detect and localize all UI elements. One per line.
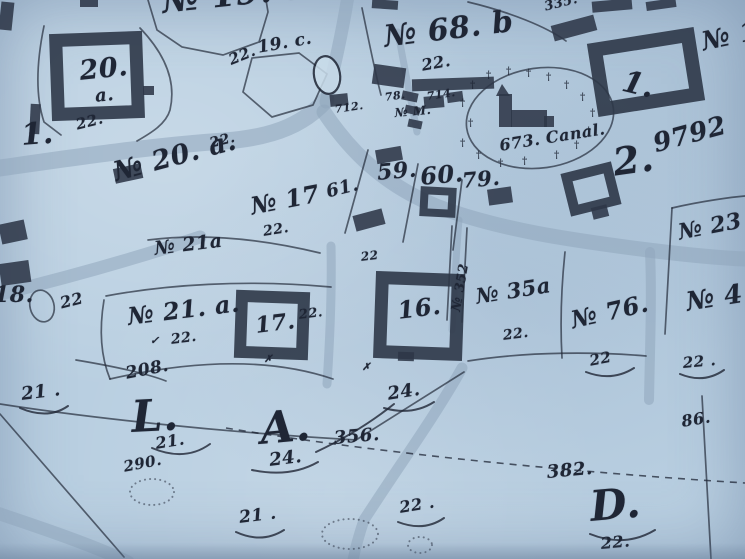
label-layer: № 19. a.22.19. c.20.a.22.1.№ 68. b22.335… bbox=[0, 0, 745, 559]
map-label: № 17 bbox=[248, 179, 322, 221]
grave-cross-icon: † bbox=[590, 108, 595, 119]
map-label: 22. bbox=[74, 109, 105, 133]
map-label: 22 bbox=[58, 288, 85, 312]
map-label: 61. bbox=[324, 174, 361, 202]
map-label: 17. bbox=[254, 308, 297, 339]
map-label: 335. bbox=[543, 0, 579, 15]
map-label: 22. bbox=[226, 42, 258, 69]
map-label: ✓ bbox=[150, 334, 160, 347]
map-label: 22. bbox=[502, 325, 530, 344]
grave-cross-icon: † bbox=[460, 98, 465, 109]
grave-cross-icon: † bbox=[564, 80, 569, 91]
map-label: 382. bbox=[546, 458, 593, 483]
map-label: ✗ bbox=[264, 354, 273, 365]
map-label: 22 . bbox=[398, 492, 436, 516]
map-label: 22. bbox=[420, 51, 452, 75]
map-label: 9792 bbox=[650, 111, 730, 159]
map-label: 20. bbox=[78, 51, 129, 87]
map-label: № 68. b bbox=[382, 4, 515, 55]
grave-cross-icon: † bbox=[526, 68, 531, 79]
grave-cross-icon: † bbox=[476, 150, 481, 161]
map-label: № 19. a. bbox=[160, 0, 321, 22]
map-label: 2. bbox=[610, 134, 657, 184]
map-label: 21 . bbox=[20, 379, 62, 405]
map-label: 22. bbox=[298, 305, 324, 323]
map-label: 22 bbox=[588, 348, 613, 370]
grave-cross-icon: † bbox=[486, 70, 491, 81]
map-label: 79. bbox=[461, 165, 501, 193]
map-label: 86. bbox=[680, 407, 712, 430]
map-label: 673. Canal. bbox=[498, 119, 606, 154]
grave-cross-icon: † bbox=[506, 66, 511, 77]
map-label: D. bbox=[588, 478, 643, 531]
map-label: № 35a bbox=[474, 272, 552, 308]
grave-cross-icon: † bbox=[468, 118, 473, 129]
grave-cross-icon: † bbox=[580, 92, 585, 103]
map-label: 24. bbox=[386, 379, 422, 405]
map-label: 22. bbox=[170, 329, 198, 348]
map-label: a. bbox=[94, 84, 115, 107]
map-label: № M. bbox=[394, 103, 432, 120]
grave-cross-icon: † bbox=[522, 156, 527, 167]
map-label: 22 . bbox=[682, 351, 717, 372]
map-label: № 21. a. bbox=[126, 288, 241, 330]
map-label: № 352 bbox=[449, 262, 472, 312]
grave-cross-icon: † bbox=[546, 72, 551, 83]
sheet-edge-shade bbox=[0, 543, 745, 559]
map-label: 208. bbox=[124, 356, 170, 384]
grave-cross-icon: † bbox=[586, 126, 591, 137]
map-label: № 1 bbox=[699, 16, 745, 57]
map-label: 1. bbox=[619, 64, 659, 106]
map-label: 356. bbox=[333, 424, 380, 449]
map-label: № 21a bbox=[153, 230, 224, 260]
grave-cross-icon: † bbox=[470, 80, 475, 91]
map-label: 21 . bbox=[238, 503, 278, 527]
map-label: 22 bbox=[360, 248, 379, 264]
map-label: 714. bbox=[426, 86, 456, 103]
map-label: 290. bbox=[122, 451, 163, 476]
map-label: 712. bbox=[334, 99, 364, 116]
map-label: № 4 bbox=[684, 279, 745, 318]
grave-cross-icon: † bbox=[498, 158, 503, 169]
map-label: 24. bbox=[268, 446, 303, 471]
map-label: 22. bbox=[262, 220, 290, 240]
cadastral-map: № 19. a.22.19. c.20.a.22.1.№ 68. b22.335… bbox=[0, 0, 745, 559]
map-label: № 23 bbox=[676, 208, 744, 246]
grave-cross-icon: † bbox=[554, 150, 559, 161]
map-label: 21. bbox=[154, 429, 186, 452]
map-label: 19. c. bbox=[256, 28, 313, 57]
map-label: 18. bbox=[0, 282, 34, 308]
map-label: № 76. bbox=[568, 288, 651, 334]
map-label: ✗ bbox=[362, 362, 371, 373]
map-label: 78. bbox=[384, 88, 406, 104]
map-label: 1. bbox=[20, 116, 55, 153]
map-label: 16. bbox=[396, 291, 442, 325]
map-label: 59. bbox=[376, 157, 418, 186]
map-label: 60. bbox=[419, 158, 465, 191]
map-label: A. bbox=[258, 400, 313, 455]
grave-cross-icon: † bbox=[460, 138, 465, 149]
grave-cross-icon: † bbox=[574, 140, 579, 151]
